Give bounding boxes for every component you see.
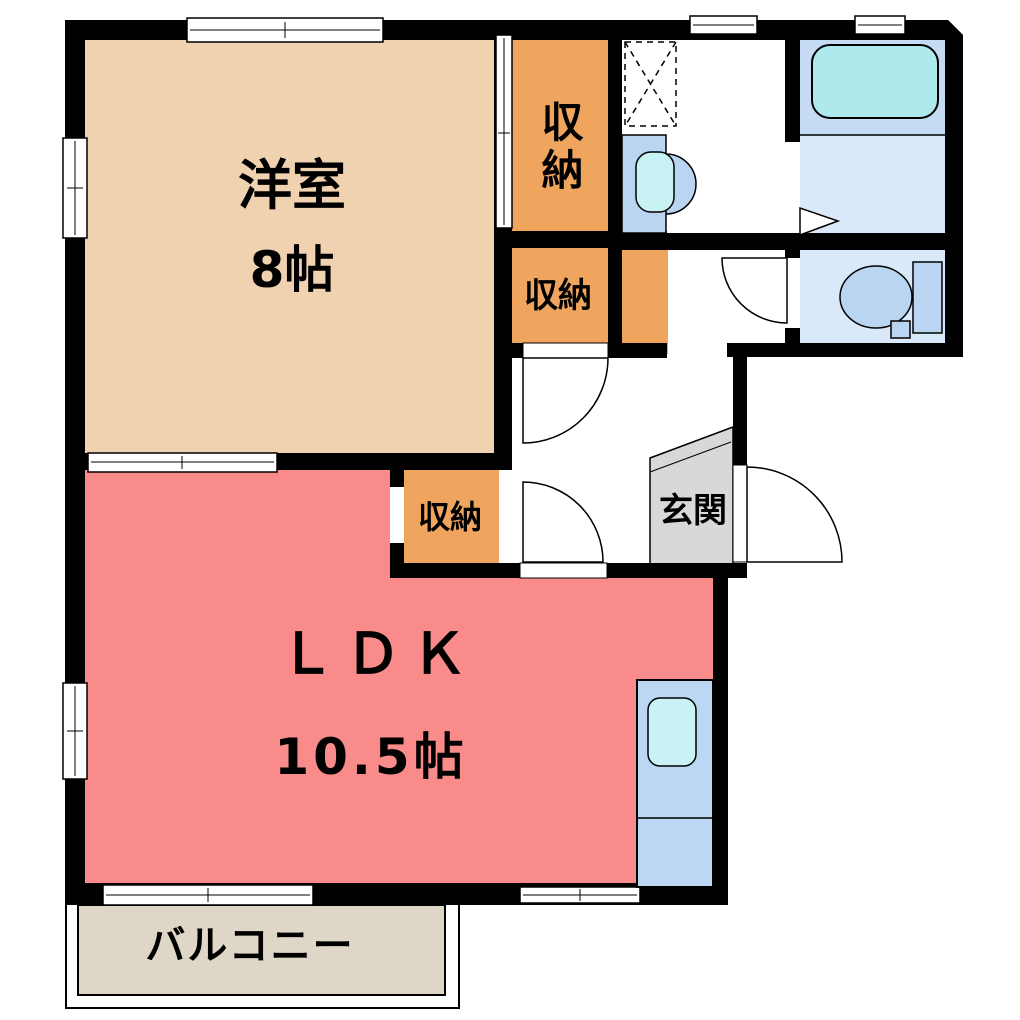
toilet-tank [913, 262, 942, 333]
closet1-label: 収納 [538, 100, 580, 196]
balcony-label: バルコニー [145, 926, 354, 966]
front-door-swing [747, 467, 842, 562]
closet2-label: 収納 [524, 279, 592, 313]
closet2-back-area [620, 246, 668, 354]
wall-ldk-right [713, 563, 728, 905]
wall-closet-right [608, 20, 622, 358]
kitchen-sink [648, 698, 696, 766]
floorplan-svg [0, 0, 1020, 1020]
closet3-label: 収納 [418, 501, 482, 533]
westernroom-door-swing [523, 358, 608, 443]
washing-machine-pan [625, 42, 676, 126]
wall-toilet-bottom [727, 343, 963, 357]
western-room-size-label: 8帖 [250, 245, 335, 295]
ldk-door-gap [520, 563, 607, 578]
floor-plan: 洋室 8帖 収納 収納 収納 玄関 ＬＤＫ 10.5帖 バルコニー [0, 0, 1020, 1020]
ldk-size-label: 10.5帖 [274, 732, 467, 782]
wall-right [945, 20, 963, 357]
bathtub [812, 45, 938, 118]
westernroom-door-gap [523, 343, 608, 358]
wall-wash-bottom [610, 233, 963, 250]
bathroom-door-gap [785, 142, 800, 233]
wall-entrance-right [733, 343, 747, 465]
washroom-door-swing [722, 258, 787, 323]
washbasin-sink [636, 152, 674, 212]
ldk-label: ＬＤＫ [279, 627, 477, 683]
closet3-door-gap [390, 487, 404, 543]
western-room-label: 洋室 [238, 159, 346, 213]
toilet-control [891, 321, 910, 338]
toilet-bowl [840, 266, 912, 328]
entrance-label: 玄関 [659, 494, 727, 528]
ldk-door-swing [523, 482, 603, 562]
front-door-leaf [733, 465, 747, 562]
